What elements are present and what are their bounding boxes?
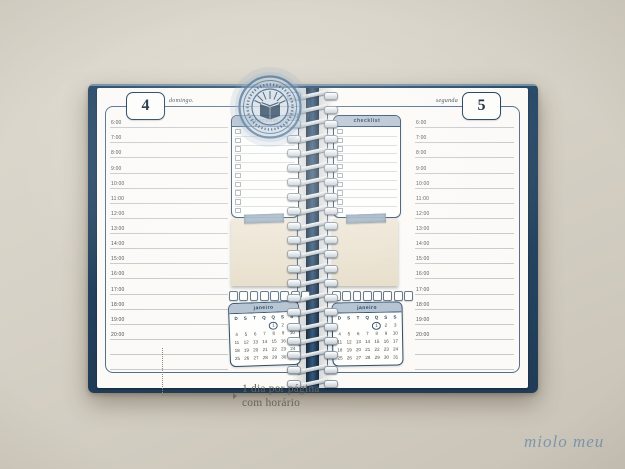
left-washi-tape: [244, 213, 284, 223]
time-label: 6:00: [416, 120, 427, 126]
time-label: 20:00: [111, 332, 125, 338]
time-row: [110, 355, 228, 370]
calendar-day: 12: [344, 338, 353, 346]
time-label: 9:00: [111, 166, 122, 172]
habit-checkbox-icon: [260, 291, 269, 301]
calendar-day: 20: [354, 346, 363, 354]
time-label: 17:00: [416, 287, 430, 293]
habit-checkbox-icon: [383, 291, 392, 301]
time-label: 10:00: [416, 181, 430, 187]
coil-loop: [287, 178, 301, 186]
time-row: [110, 340, 228, 355]
coil-loop: [324, 178, 338, 186]
time-label: 11:00: [111, 196, 124, 202]
calendar-day: 31: [391, 354, 400, 362]
annotation-leader-horizontal: [162, 395, 232, 396]
calendar-day: 8: [372, 329, 381, 337]
calendar-day: 28: [363, 354, 372, 362]
time-row: 14:00: [415, 234, 514, 249]
checklist-title: checklist: [354, 118, 381, 124]
spiral-coil: [287, 249, 338, 258]
calendar-day: 28: [261, 354, 271, 363]
time-label: 6:00: [111, 120, 122, 126]
time-row: 20:00: [110, 325, 228, 340]
coil-loop: [324, 380, 338, 388]
checklist-row: [337, 198, 397, 207]
left-time-slots: 6:00 7:00 8:00 9:00 10:00 11:00 12:00 13…: [110, 113, 228, 370]
checkbox-icon: [235, 199, 241, 205]
calendar-day: 25: [233, 355, 243, 364]
time-row: 19:00: [110, 310, 228, 325]
time-label: 8:00: [111, 150, 122, 156]
coil-loop: [324, 366, 338, 374]
coil-loop: [287, 294, 301, 302]
calendar-day: 24: [391, 345, 400, 353]
checklist-row: [337, 154, 397, 163]
calendar-day: 2: [381, 321, 390, 329]
calendar-dow-cell: Q: [372, 314, 381, 322]
time-row: 7:00: [110, 128, 228, 143]
right-sticky-note: [333, 219, 398, 286]
spiral-coil: [287, 364, 338, 373]
calendar-day: 30: [382, 354, 391, 362]
coil-loop: [324, 351, 338, 359]
checklist-row: [337, 137, 397, 146]
spiral-coil: [287, 292, 338, 301]
annotation-arrow-icon: [233, 393, 237, 399]
coil-loop: [324, 207, 338, 215]
calendar-day: 6: [353, 330, 362, 338]
time-label: 12:00: [416, 211, 430, 217]
coil-loop: [287, 250, 301, 258]
coil-loop: [324, 250, 338, 258]
calendar-day: 10: [391, 329, 400, 337]
coil-loop: [324, 193, 338, 201]
spiral-coil: [287, 321, 338, 330]
annotation-line1: 1 dia por página: [242, 382, 320, 396]
time-row: 9:00: [415, 158, 514, 173]
checkbox-icon: [235, 173, 241, 179]
checkbox-icon: [235, 155, 241, 161]
right-page: 5 segunda 6:00 7:00 8:00 9:00 10:00 11:0…: [319, 88, 528, 388]
checklist-row: [337, 190, 397, 199]
habit-checkbox-icon: [394, 291, 403, 301]
checkbox-icon: [235, 164, 241, 170]
time-row: 10:00: [110, 174, 228, 189]
time-row: 12:00: [415, 204, 514, 219]
coil-loop: [324, 106, 338, 114]
left-day-name-label: domingo.: [169, 98, 194, 104]
time-row: 17:00: [415, 279, 514, 294]
time-row: 20:00: [415, 325, 514, 340]
time-label: 9:00: [416, 166, 427, 172]
time-label: 7:00: [111, 135, 122, 141]
calendar-day: 29: [270, 354, 280, 363]
habit-checkbox-icon: [373, 291, 382, 301]
right-day-number: 5: [478, 97, 486, 115]
coil-loop: [324, 149, 338, 157]
habit-checkbox-icon: [229, 291, 238, 301]
coil-loop: [324, 323, 338, 331]
spiral-coil: [287, 278, 338, 287]
checklist-row: [235, 172, 295, 181]
calendar-dow-cell: S: [390, 313, 399, 321]
calendar-days-grid: 1234567891011121314151617181920212223242…: [333, 321, 403, 363]
coil-loop: [287, 265, 301, 273]
habit-checkbox-icon: [363, 291, 372, 301]
habit-checkbox-icon: [353, 291, 362, 301]
checklist-row: [337, 146, 397, 155]
right-day-name-label: segunda: [413, 98, 458, 104]
time-row: 10:00: [415, 174, 514, 189]
coil-loop: [287, 308, 301, 316]
calendar-day: 14: [363, 338, 372, 346]
checklist-row: [337, 128, 397, 137]
time-label: 17:00: [111, 287, 125, 293]
right-day-number-box: 5: [462, 92, 501, 120]
time-label: 10:00: [111, 181, 125, 187]
product-mockup-stage: 4 domingo. 6:00 7:00 8:00 9:00 10:00 11:…: [0, 0, 625, 469]
coil-loop: [324, 265, 338, 273]
coil-loop: [287, 279, 301, 287]
calendar-day: [363, 321, 372, 329]
calendar-day: 15: [372, 338, 381, 346]
calendar-day: 9: [381, 329, 390, 337]
time-row: 11:00: [415, 189, 514, 204]
spiral-coil: [287, 307, 338, 316]
annotation-text: 1 dia por página com horário: [242, 382, 320, 410]
checklist-row: [235, 190, 295, 199]
checklist-row: [337, 181, 397, 190]
calendar-day: 26: [242, 355, 252, 364]
calendar-day: 3: [390, 321, 399, 329]
habit-checkbox-icon: [404, 291, 413, 301]
coil-loop: [324, 279, 338, 287]
calendar-day: 7: [363, 330, 372, 338]
coil-loop: [287, 149, 301, 157]
time-label: 15:00: [111, 256, 125, 262]
left-day-number-box: 4: [126, 92, 165, 120]
checkbox-icon: [235, 182, 241, 188]
calendar-day: 22: [372, 346, 381, 354]
time-label: 19:00: [111, 317, 125, 323]
time-label: 18:00: [111, 302, 125, 308]
annotation-leader-vertical: [162, 348, 163, 395]
time-row: 11:00: [110, 189, 228, 204]
coil-loop: [324, 222, 338, 230]
calendar-day: [344, 322, 353, 330]
coil-loop: [324, 236, 338, 244]
checklist-row: [235, 198, 295, 207]
left-day-number: 4: [142, 97, 150, 115]
time-row: 19:00: [415, 310, 514, 325]
habit-checkbox-icon: [270, 291, 279, 301]
spiral-coil: [287, 206, 338, 215]
spiral-coil: [287, 162, 338, 171]
coil-loop: [324, 120, 338, 128]
spiral-coil: [287, 350, 338, 359]
checklist-rows: [334, 127, 400, 217]
calendar-month-label: janeiro: [357, 304, 377, 310]
time-label: 18:00: [416, 302, 430, 308]
coil-loop: [324, 92, 338, 100]
coil-loop: [287, 236, 301, 244]
coil-loop: [287, 366, 301, 374]
calendar-dow-cell: Q: [362, 314, 371, 322]
right-habit-checkbox-row: [332, 291, 413, 301]
brand-seal-badge: [228, 62, 312, 150]
time-row: 7:00: [415, 128, 514, 143]
coil-loop: [324, 294, 338, 302]
time-row: 8:00: [110, 143, 228, 158]
coil-loop: [324, 164, 338, 172]
time-label: 15:00: [416, 256, 430, 262]
time-label: 13:00: [111, 226, 125, 232]
right-checklist-widget: checklist: [333, 115, 401, 218]
coil-loop: [324, 308, 338, 316]
checklist-row: [235, 181, 295, 190]
time-label: 16:00: [111, 271, 125, 277]
time-row: 15:00: [415, 249, 514, 264]
coil-loop: [287, 193, 301, 201]
calendar-day: [353, 322, 362, 330]
time-row: 18:00: [110, 295, 228, 310]
checklist-row: [235, 163, 295, 172]
calendar-dow-cell: S: [344, 314, 353, 322]
checklist-row: [235, 154, 295, 163]
spiral-coil: [287, 191, 338, 200]
checklist-row: [337, 163, 397, 172]
calendar-dow-cell: Q: [268, 314, 278, 322]
habit-checkbox-icon: [342, 291, 351, 301]
time-row: 14:00: [110, 234, 228, 249]
time-label: 14:00: [416, 241, 430, 247]
time-label: 19:00: [416, 317, 430, 323]
spiral-coil: [287, 335, 338, 344]
right-washi-tape: [346, 213, 386, 223]
habit-checkbox-icon: [250, 291, 259, 301]
time-label: 13:00: [416, 226, 430, 232]
time-row: 13:00: [110, 219, 228, 234]
time-label: 16:00: [416, 271, 430, 277]
coil-loop: [287, 207, 301, 215]
spiral-coil: [287, 263, 338, 272]
annotation-line2: com horário: [242, 396, 320, 410]
time-row: 13:00: [415, 219, 514, 234]
time-row: 8:00: [415, 143, 514, 158]
right-time-slots: 6:00 7:00 8:00 9:00 10:00 11:00 12:00 13…: [415, 113, 514, 370]
checkbox-icon: [235, 208, 241, 214]
calendar-day: 26: [345, 354, 354, 362]
time-row: 16:00: [415, 264, 514, 279]
time-label: 7:00: [416, 135, 427, 141]
time-label: 12:00: [111, 211, 125, 217]
coil-loop: [287, 222, 301, 230]
brand-logo: miolo meu: [524, 432, 604, 452]
calendar-day: 29: [372, 354, 381, 362]
coil-loop: [287, 164, 301, 172]
coil-loop: [287, 337, 301, 345]
habit-checkbox-icon: [239, 291, 248, 301]
checklist-header: checklist: [334, 116, 400, 127]
time-row: [415, 355, 514, 370]
calendar-day: 27: [251, 354, 261, 363]
time-row: 18:00: [415, 295, 514, 310]
time-row: 12:00: [110, 204, 228, 219]
time-row: 9:00: [110, 158, 228, 173]
time-label: 8:00: [416, 150, 427, 156]
spiral-coil: [287, 177, 338, 186]
time-row: [415, 340, 514, 355]
coil-loop: [287, 351, 301, 359]
calendar-day: 27: [354, 354, 363, 362]
calendar-day: 23: [382, 346, 391, 354]
calendar-day: 13: [354, 338, 363, 346]
checkbox-icon: [235, 190, 241, 196]
time-label: 20:00: [416, 332, 430, 338]
spiral-coil: [287, 234, 338, 243]
checklist-row: [337, 172, 397, 181]
time-row: 15:00: [110, 249, 228, 264]
spiral-coil: [287, 220, 338, 229]
time-label: 14:00: [111, 241, 125, 247]
calendar-day: 16: [381, 337, 390, 345]
coil-loop: [287, 323, 301, 331]
coil-loop: [324, 337, 338, 345]
time-label: 11:00: [416, 196, 429, 202]
calendar-day: 1: [372, 321, 381, 329]
coil-loop: [324, 135, 338, 143]
calendar-day: 19: [344, 346, 353, 354]
calendar-day: 17: [391, 337, 400, 345]
time-row: 17:00: [110, 279, 228, 294]
calendar-day: 5: [344, 330, 353, 338]
right-mini-calendar: janeiro DSTQQSS 123456789101112131415161…: [331, 301, 403, 366]
time-row: 16:00: [110, 264, 228, 279]
calendar-day: 21: [363, 346, 372, 354]
calendar-header: janeiro: [332, 302, 401, 313]
calendar-month-label: janeiro: [254, 304, 274, 311]
